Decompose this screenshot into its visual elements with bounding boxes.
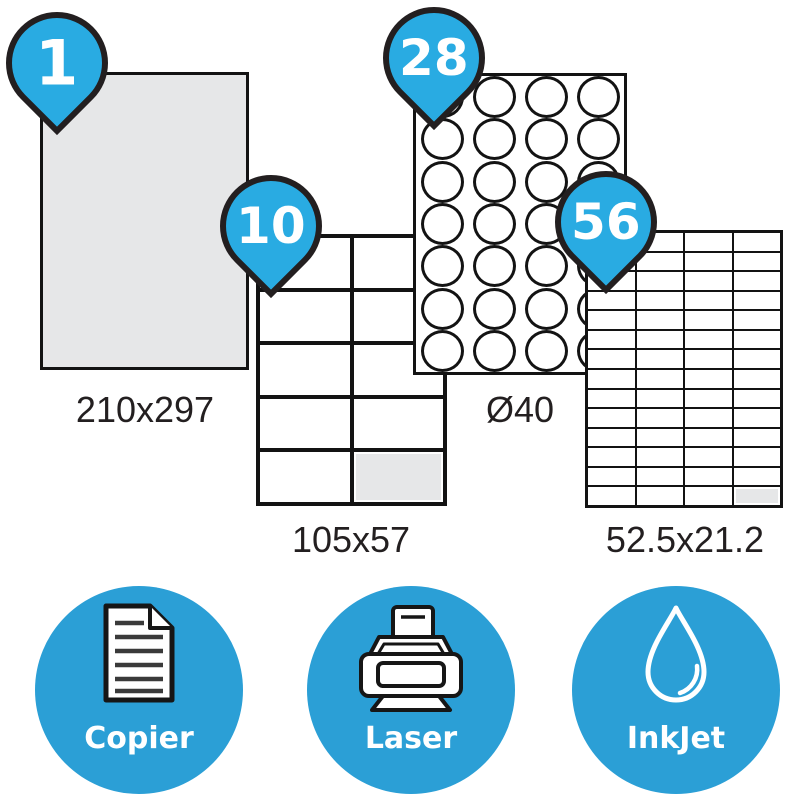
label-cell [684,291,733,311]
label-cell [636,428,685,448]
label-cell [684,310,733,330]
document-icon [100,602,178,710]
count-pin-10-value: 10 [236,201,306,251]
dimension-label-10: 105x57 [247,519,455,561]
label-cell [258,343,352,397]
label-cell [684,232,733,252]
printer-badge-inkjet: InkJet [572,586,780,794]
label-cell [352,450,446,504]
label-cell [733,349,782,369]
printer-badge-inkjet-label: InkJet [627,724,725,754]
label-cell [733,232,782,252]
label-cell [636,447,685,467]
label-cell [258,397,352,451]
label-cell [733,389,782,409]
round-label [421,330,464,372]
round-label-cell [520,330,572,372]
count-pin-28-value: 28 [399,33,469,83]
printer-badge-copier: Copier [35,586,243,794]
round-label [473,203,516,245]
round-label-cell [468,118,520,160]
label-product-illustration: 1 10 28 56 210x297 Ø40 105x57 52.5x21.2 [0,0,800,800]
label-cell [684,447,733,467]
round-label-cell [520,118,572,160]
round-label-cell [468,245,520,287]
round-label [421,288,464,330]
label-cell [733,369,782,389]
dimension-label-a4: 210x297 [40,389,250,431]
label-cell [636,389,685,409]
label-cell [587,330,636,350]
round-label [525,76,568,118]
label-cell [587,349,636,369]
label-cell [636,349,685,369]
label-cell [636,310,685,330]
label-cell [684,486,733,506]
round-label [525,330,568,372]
label-cell [587,369,636,389]
count-pin-56-value: 56 [571,197,641,247]
round-label [577,76,620,118]
round-label [577,118,620,160]
round-label-cell [468,287,520,329]
round-label-cell [572,76,624,118]
round-label [473,118,516,160]
printer-badge-laser: Laser [307,586,515,794]
round-label [473,288,516,330]
round-label-cell [416,203,468,245]
round-label [473,330,516,372]
round-label [421,245,464,287]
label-cell [258,290,352,344]
round-label-cell [416,330,468,372]
label-cell [684,428,733,448]
round-label-cell [468,203,520,245]
label-cell [636,486,685,506]
round-label-cell [416,161,468,203]
round-label [421,118,464,160]
label-cell [636,369,685,389]
round-label [421,203,464,245]
label-cell [684,271,733,291]
ink-drop-icon [636,602,716,710]
label-cell [733,271,782,291]
round-label-cell [416,245,468,287]
label-cell [733,447,782,467]
round-label [473,161,516,203]
label-cell [684,369,733,389]
label-cell [733,486,782,506]
round-label-cell [572,118,624,160]
round-label [525,288,568,330]
printer-badge-laser-label: Laser [365,724,457,754]
label-cell [587,486,636,506]
printer-badge-copier-label: Copier [84,724,194,754]
label-cell [636,408,685,428]
label-cell [587,291,636,311]
count-pin-1-value: 1 [35,32,78,94]
label-cell [733,291,782,311]
label-cell [587,467,636,487]
round-label-cell [520,287,572,329]
round-label [421,161,464,203]
label-cell [733,467,782,487]
label-cell [733,408,782,428]
laser-printer-icon [352,602,470,710]
dimension-label-56: 52.5x21.2 [573,519,797,561]
label-cell [684,467,733,487]
label-cell [733,428,782,448]
label-cell [636,330,685,350]
round-label-cell [468,161,520,203]
dimension-label-round: Ø40 [413,389,627,431]
round-label-cell [468,330,520,372]
round-label [473,245,516,287]
label-cell [733,310,782,330]
label-cell [258,450,352,504]
round-label-cell [520,76,572,118]
round-label-cell [416,287,468,329]
label-cell [684,349,733,369]
label-cell [684,408,733,428]
label-cell [684,330,733,350]
label-cell [587,310,636,330]
label-cell [636,271,685,291]
round-label [525,245,568,287]
label-cell [587,447,636,467]
label-cell [733,252,782,272]
round-label [525,118,568,160]
label-cell [684,252,733,272]
label-cell [636,467,685,487]
label-cell [684,389,733,409]
round-label-cell [416,118,468,160]
label-cell [636,291,685,311]
label-cell [733,330,782,350]
